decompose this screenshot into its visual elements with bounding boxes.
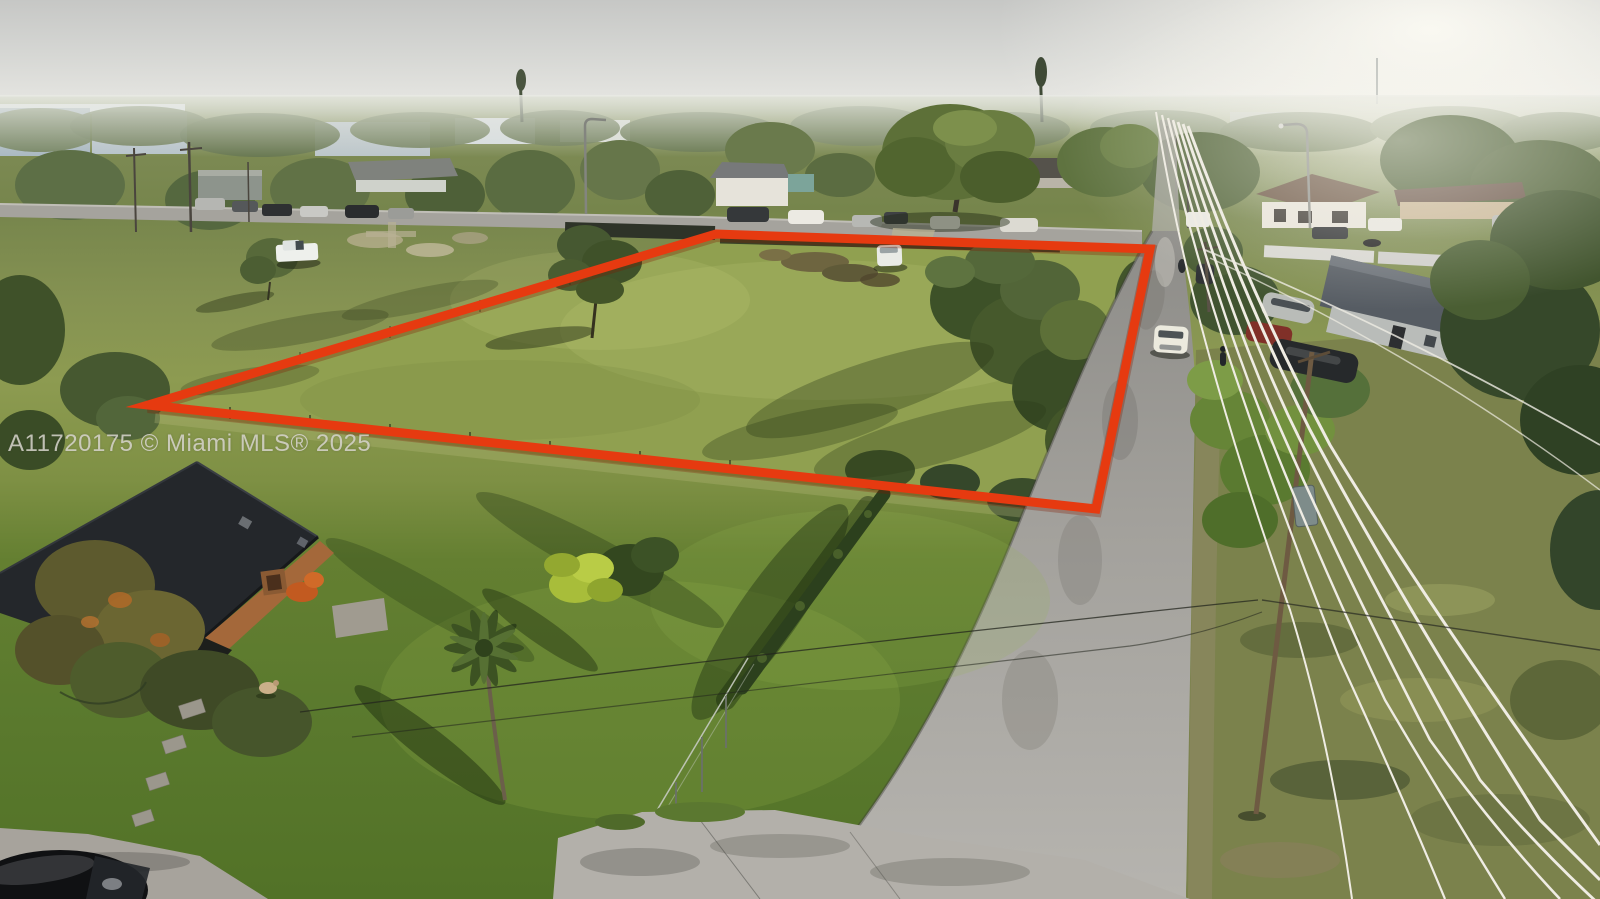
dog (256, 680, 279, 699)
pedestrian (1220, 346, 1226, 366)
aerial-listing-photo: A11720175 © Miami MLS® 2025 (0, 0, 1600, 899)
white-house-wall (716, 178, 788, 206)
concrete-slab (332, 598, 388, 638)
mls-watermark: A11720175 © Miami MLS® 2025 (8, 430, 371, 458)
white-house-roof (710, 162, 790, 178)
white-car-driving (1150, 325, 1192, 361)
teal-shed (788, 174, 814, 192)
